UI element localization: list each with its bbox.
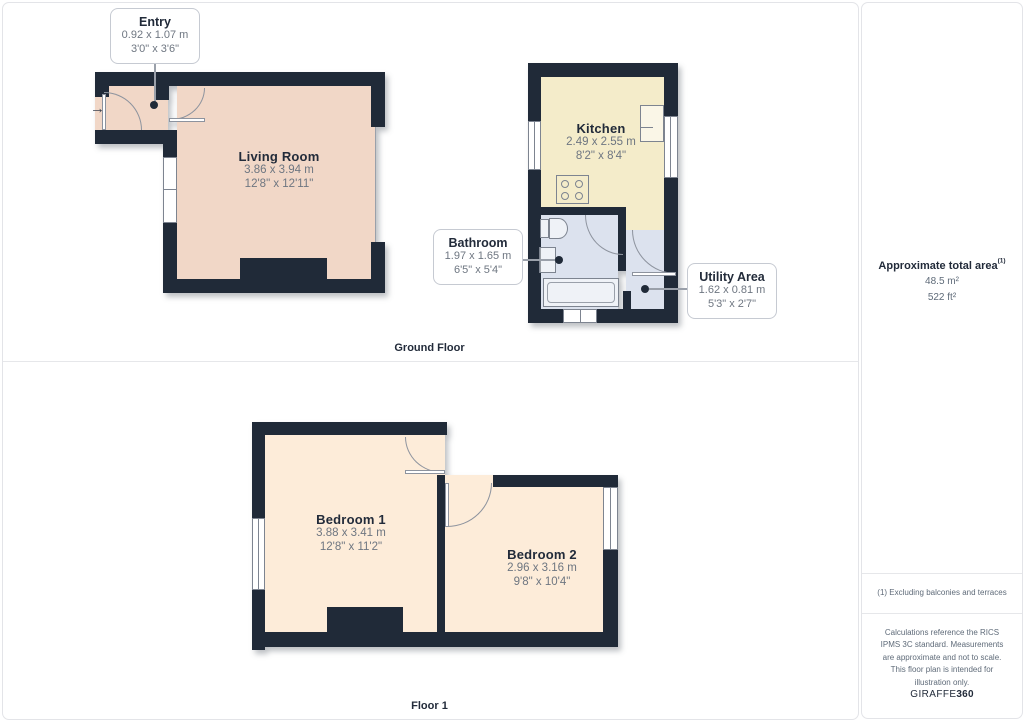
disclaimer-text: Calculations reference the RICS IPMS 3C … (875, 627, 1009, 689)
leader-line (154, 63, 156, 103)
brand-name-normal: GIRAFFE (910, 689, 956, 700)
balconies-footnote: (1) Excluding balconies and terraces (862, 588, 1022, 597)
giraffe360-logo: GIRAFFE360 (862, 689, 1022, 700)
sidebar-divider (862, 613, 1022, 614)
chimney-breast (327, 607, 403, 632)
callout-dim-metric: 0.92 x 1.07 m (111, 29, 199, 43)
leader-dot (555, 256, 563, 264)
callout-dim-metric: 1.97 x 1.65 m (434, 250, 522, 264)
chimney-breast (240, 258, 327, 279)
room-dim-metric: 3.88 x 3.41 m (316, 527, 386, 541)
door-leaf (169, 118, 205, 122)
callout-title: Entry (111, 15, 199, 29)
floor-plan-page: → (0, 0, 1024, 724)
living-room-floor-edge (371, 127, 376, 242)
wall (528, 63, 678, 77)
room-dim-imperial: 8'2" x 8'4" (566, 150, 636, 164)
callout-title: Bathroom (434, 236, 522, 250)
callout-dim-metric: 1.62 x 0.81 m (688, 284, 776, 298)
total-area-ft2: 522 ft² (862, 290, 1022, 306)
window (163, 157, 177, 223)
ground-floor-label: Ground Floor (2, 342, 857, 354)
living-room-label: Living Room 3.86 x 3.94 m 12'8" x 12'11" (239, 149, 320, 191)
wall (252, 632, 618, 647)
bathroom-callout: Bathroom 1.97 x 1.65 m 6'5" x 5'4" (433, 229, 523, 285)
kitchen-sink-icon (640, 105, 664, 142)
wall (528, 63, 541, 323)
floor-section-divider (3, 361, 858, 362)
window (664, 116, 678, 178)
entry-callout: Entry 0.92 x 1.07 m 3'0" x 3'6" (110, 8, 200, 64)
room-dim-imperial: 12'8" x 11'2" (316, 541, 386, 555)
callout-dim-imperial: 5'3" x 2'7" (688, 298, 776, 312)
room-dim-metric: 2.96 x 3.16 m (507, 562, 577, 576)
window-divider (580, 309, 581, 323)
room-dim-imperial: 12'8" x 12'11" (239, 178, 320, 192)
room-dim-metric: 2.49 x 2.55 m (566, 136, 636, 150)
total-area-m2: 48.5 m² (862, 274, 1022, 290)
bedroom1-label: Bedroom 1 3.88 x 3.41 m 12'8" x 11'2" (316, 512, 386, 554)
bathtub-icon (543, 278, 619, 307)
total-area-block: Approximate total area(1) 48.5 m² 522 ft… (862, 256, 1022, 305)
room-name: Bedroom 1 (316, 512, 386, 527)
total-area-title: Approximate total area (878, 260, 997, 272)
window-divider (670, 116, 671, 178)
bedroom2-label: Bedroom 2 2.96 x 3.16 m 9'8" x 10'4" (507, 547, 577, 589)
kitchen-unit (528, 63, 678, 323)
bedrooms-unit (252, 422, 618, 650)
wall (437, 475, 445, 632)
leader-dot (150, 101, 158, 109)
wall (528, 309, 678, 323)
room-name: Kitchen (566, 121, 636, 136)
wall (163, 279, 385, 293)
entry-arrow-icon: → (90, 100, 105, 117)
wall (541, 207, 623, 215)
window-divider (163, 189, 177, 190)
door-leaf (405, 470, 445, 474)
toilet-tank-icon (540, 219, 549, 238)
sidebar-divider (862, 573, 1022, 574)
info-sidebar: Approximate total area(1) 48.5 m² 522 ft… (861, 2, 1023, 719)
total-area-footnote-marker: (1) (998, 258, 1006, 265)
room-dim-metric: 3.86 x 3.94 m (239, 164, 320, 178)
wall (155, 86, 169, 100)
callout-title: Utility Area (688, 270, 776, 284)
wall (623, 291, 631, 309)
wall (371, 72, 385, 127)
window-divider (258, 518, 259, 590)
wall (252, 422, 447, 435)
callout-dim-imperial: 6'5" x 5'4" (434, 264, 522, 278)
leader-line (523, 259, 559, 261)
toilet-bowl-icon (549, 218, 568, 239)
door-leaf (632, 272, 676, 276)
stove-icon (556, 175, 589, 204)
room-name: Living Room (239, 149, 320, 164)
leader-line (649, 288, 687, 290)
window-divider (610, 487, 611, 550)
window-divider (534, 121, 535, 170)
kitchen-floor (623, 207, 664, 230)
door-leaf (445, 483, 449, 527)
room-name: Bedroom 2 (507, 547, 577, 562)
wall (95, 72, 385, 86)
utility-callout: Utility Area 1.62 x 0.81 m 5'3" x 2'7" (687, 263, 777, 319)
room-dim-imperial: 9'8" x 10'4" (507, 576, 577, 590)
floor1-label: Floor 1 (2, 700, 857, 712)
callout-dim-imperial: 3'0" x 3'6" (111, 43, 199, 57)
wall (664, 63, 678, 323)
brand-name-bold: 360 (956, 689, 973, 700)
wall (95, 130, 167, 144)
leader-dot (641, 285, 649, 293)
wall (493, 475, 603, 487)
kitchen-label: Kitchen 2.49 x 2.55 m 8'2" x 8'4" (566, 121, 636, 163)
